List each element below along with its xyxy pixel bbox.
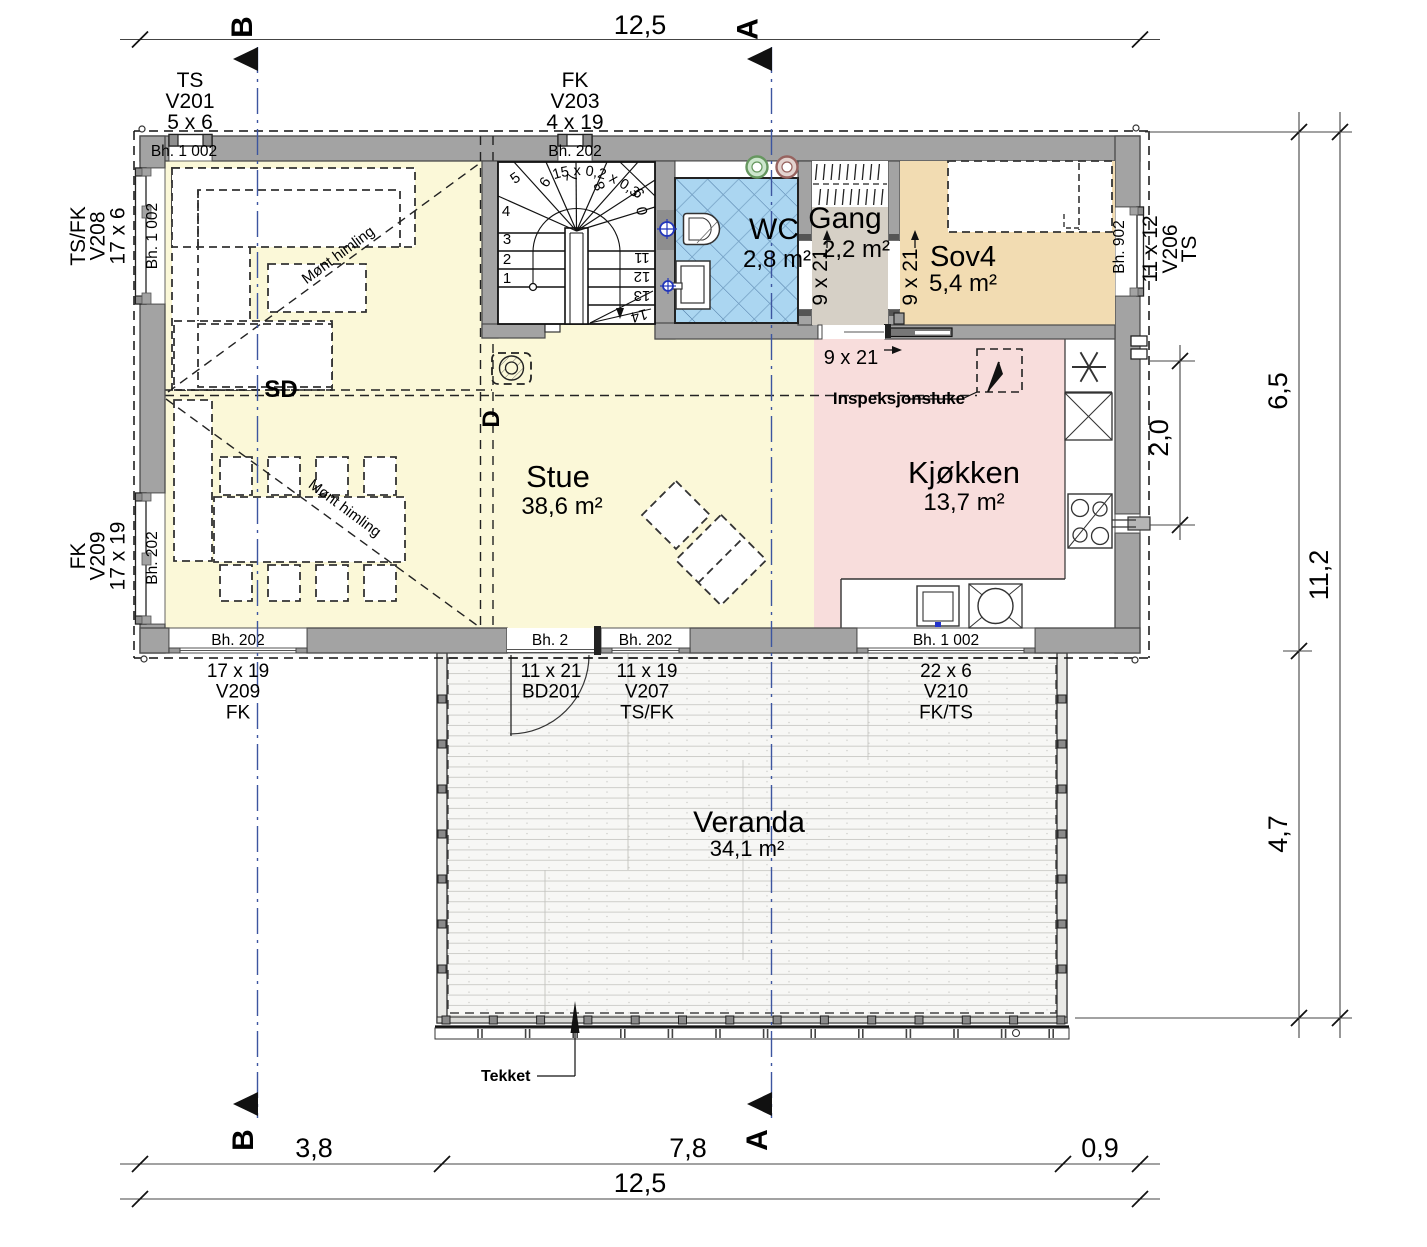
svg-text:A: A [741, 1129, 774, 1151]
svg-text:13: 13 [634, 287, 651, 304]
svg-text:7,8: 7,8 [669, 1133, 707, 1163]
svg-text:34,1 m²: 34,1 m² [710, 836, 785, 861]
svg-text:Tekket: Tekket [481, 1068, 531, 1085]
svg-text:17 x 19: 17 x 19 [107, 522, 130, 591]
svg-text:11 x 21: 11 x 21 [521, 661, 582, 682]
svg-text:V209: V209 [216, 682, 260, 703]
svg-text:Bh. 202: Bh. 202 [619, 632, 672, 649]
svg-text:Kjøkken: Kjøkken [908, 455, 1020, 490]
svg-text:3: 3 [503, 231, 511, 248]
svg-text:9 x 21: 9 x 21 [824, 347, 878, 369]
svg-text:Bh. 1 002: Bh. 1 002 [144, 203, 161, 269]
svg-text:B: B [227, 1129, 260, 1151]
svg-text:5,4 m²: 5,4 m² [929, 270, 997, 297]
svg-text:4 x 19: 4 x 19 [546, 111, 603, 134]
svg-text:2,8 m²: 2,8 m² [743, 246, 811, 273]
svg-text:11,2: 11,2 [1304, 550, 1334, 601]
svg-text:BD201: BD201 [522, 682, 580, 703]
svg-text:Sov4: Sov4 [930, 241, 996, 273]
svg-text:Bh. 902: Bh. 902 [1111, 220, 1128, 273]
svg-text:FK/TS: FK/TS [919, 703, 973, 724]
svg-text:SD: SD [264, 376, 297, 403]
svg-text:7: 7 [564, 173, 582, 183]
svg-text:12,5: 12,5 [614, 10, 667, 40]
svg-text:9 x 21: 9 x 21 [899, 248, 922, 305]
svg-text:TS: TS [177, 69, 204, 92]
svg-text:B: B [226, 16, 259, 38]
svg-text:Inspeksjonsluke: Inspeksjonsluke [833, 389, 965, 408]
svg-text:TS/FK: TS/FK [620, 703, 674, 724]
svg-text:Bh. 202: Bh. 202 [211, 632, 264, 649]
svg-text:FK: FK [562, 69, 589, 92]
svg-text:17 x 19: 17 x 19 [207, 661, 269, 682]
svg-text:V201: V201 [165, 90, 214, 113]
svg-text:V203: V203 [550, 90, 599, 113]
svg-text:Bh. 202: Bh. 202 [144, 531, 161, 584]
svg-text:V207: V207 [625, 682, 669, 703]
svg-text:3,8: 3,8 [295, 1133, 333, 1163]
svg-text:38,6 m²: 38,6 m² [521, 493, 602, 520]
svg-text:13,7 m²: 13,7 m² [923, 489, 1004, 516]
svg-text:WC: WC [749, 213, 799, 246]
svg-text:D: D [478, 410, 505, 427]
svg-text:12: 12 [634, 268, 651, 285]
svg-text:4: 4 [502, 203, 510, 220]
svg-text:4,7: 4,7 [1263, 815, 1293, 853]
svg-text:Bh. 1 002: Bh. 1 002 [151, 143, 217, 160]
svg-text:22 x 6: 22 x 6 [920, 661, 972, 682]
svg-text:Gang: Gang [808, 202, 881, 235]
svg-text:11: 11 [634, 249, 650, 266]
svg-text:Bh. 202: Bh. 202 [548, 143, 601, 160]
svg-text:17 x 6: 17 x 6 [107, 207, 130, 264]
svg-text:12,5: 12,5 [614, 1168, 667, 1198]
svg-text:A: A [732, 18, 765, 40]
svg-text:2,2 m²: 2,2 m² [822, 236, 890, 263]
svg-text:1: 1 [503, 270, 511, 287]
svg-text:9 x 21: 9 x 21 [809, 248, 832, 305]
svg-text:11 x 19: 11 x 19 [617, 661, 678, 682]
svg-text:6,5: 6,5 [1263, 372, 1293, 410]
svg-text:Veranda: Veranda [693, 806, 805, 839]
svg-text:TS: TS [1178, 236, 1201, 263]
svg-text:V210: V210 [924, 682, 968, 703]
svg-text:2,0: 2,0 [1144, 419, 1174, 457]
svg-text:2: 2 [503, 251, 511, 268]
svg-text:Stue: Stue [526, 459, 590, 494]
svg-text:FK: FK [226, 703, 251, 724]
svg-text:Bh. 1 002: Bh. 1 002 [913, 632, 979, 649]
svg-text:5 x 6: 5 x 6 [167, 111, 213, 134]
svg-text:0,9: 0,9 [1081, 1133, 1119, 1163]
svg-text:Bh. 2: Bh. 2 [532, 632, 568, 649]
